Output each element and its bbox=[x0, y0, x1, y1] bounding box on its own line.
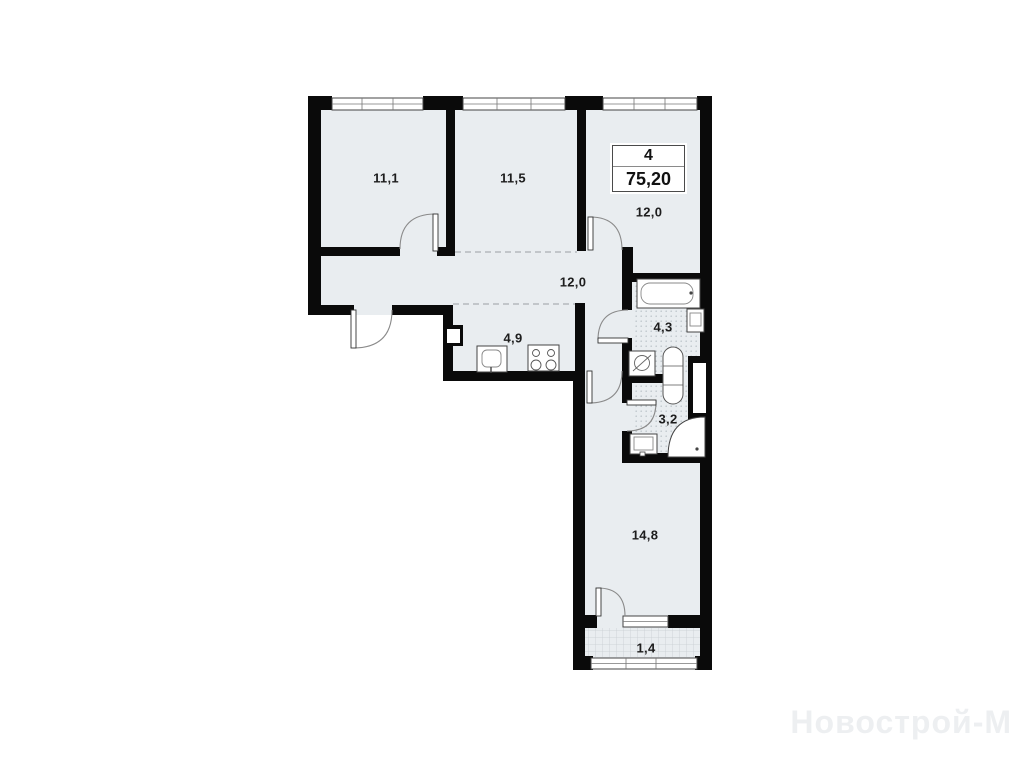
room-area-label-living-room: 14,8 bbox=[632, 528, 659, 543]
room-area-label-kitchen: 4,9 bbox=[504, 331, 523, 346]
room-area-label-bedroom-2: 11,5 bbox=[500, 171, 526, 186]
room-area-label-bathroom: 4,3 bbox=[654, 320, 673, 335]
window-living-room bbox=[623, 616, 668, 627]
room-area-label-bedroom-3: 12,0 bbox=[636, 205, 663, 220]
washing-machine bbox=[629, 351, 655, 376]
bathtub bbox=[637, 279, 700, 308]
window-bedroom-3 bbox=[603, 98, 697, 110]
kitchen-stove bbox=[528, 345, 559, 371]
kitchen-sink bbox=[477, 346, 507, 373]
unit-info-badge: 4 75,20 bbox=[612, 145, 685, 192]
unit-rooms-count: 4 bbox=[613, 146, 684, 167]
watermark-text: Новострой-М bbox=[790, 704, 1012, 741]
kitchen-duct-core bbox=[447, 329, 460, 343]
room-area-label-balcony: 1,4 bbox=[637, 641, 656, 656]
window-bedroom-1 bbox=[332, 98, 423, 110]
room-area-label-shower-room: 3,2 bbox=[659, 412, 678, 427]
vent-shaft-core bbox=[693, 363, 706, 413]
room-area-label-bedroom-1: 11,1 bbox=[373, 171, 399, 186]
entrance-door bbox=[351, 310, 392, 348]
window-bedroom-2 bbox=[463, 98, 565, 110]
towel-dryer-column bbox=[663, 347, 683, 404]
shower-room-sink bbox=[630, 434, 657, 456]
floor-plan-canvas bbox=[0, 0, 1024, 768]
unit-total-area: 75,20 bbox=[613, 167, 684, 191]
window-balcony-glazing bbox=[591, 658, 697, 669]
floor-plan-page: 11,1 11,5 12,0 12,0 4,9 4,3 3,2 14,8 1,4… bbox=[0, 0, 1024, 768]
bathroom-sink bbox=[687, 309, 704, 332]
room-area-label-hallway: 12,0 bbox=[560, 275, 587, 290]
